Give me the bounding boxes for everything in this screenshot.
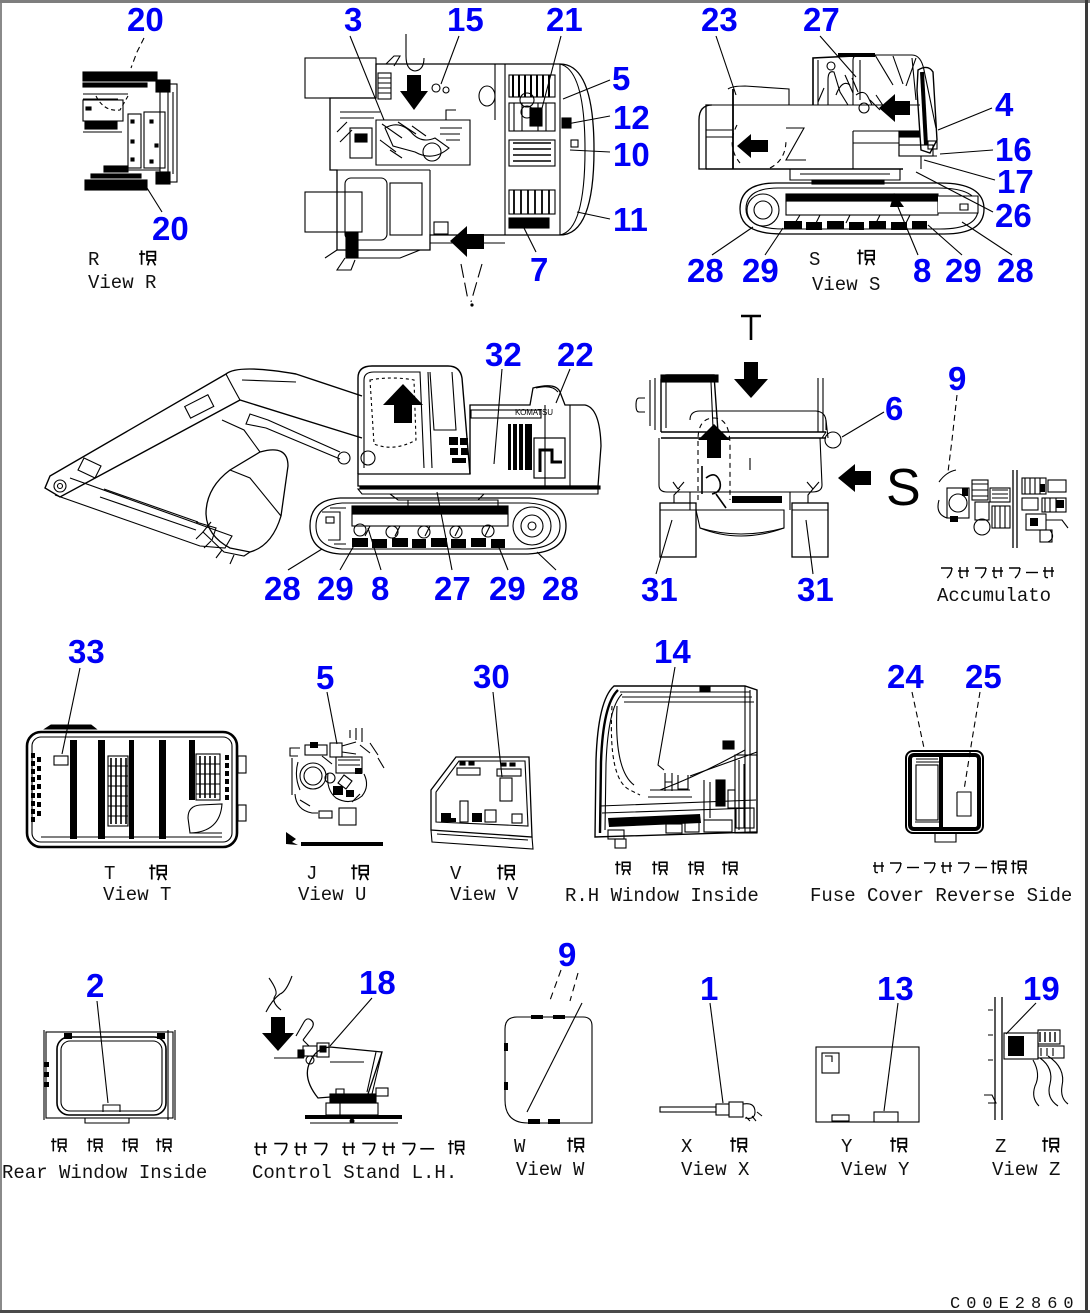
svg-text:C00E2860: C00E2860 xyxy=(950,1295,1080,1313)
svg-text:14: 14 xyxy=(654,633,691,670)
svg-text:18: 18 xyxy=(359,964,396,1001)
svg-text:25: 25 xyxy=(965,658,1002,695)
svg-text:23: 23 xyxy=(701,1,738,38)
svg-text:11: 11 xyxy=(613,201,648,238)
svg-text:Fuse Cover Reverse Side: Fuse Cover Reverse Side xyxy=(810,885,1072,907)
svg-text:T: T xyxy=(104,863,115,885)
svg-text:29: 29 xyxy=(489,570,526,607)
svg-text:8: 8 xyxy=(913,252,931,289)
svg-text:30: 30 xyxy=(473,658,510,695)
svg-text:28: 28 xyxy=(542,570,579,607)
svg-text:Rear Window Inside: Rear Window Inside xyxy=(2,1162,207,1184)
svg-text:V: V xyxy=(450,863,462,885)
svg-text:3: 3 xyxy=(344,1,362,38)
svg-text:29: 29 xyxy=(742,252,779,289)
svg-text:Accumulato: Accumulato xyxy=(937,585,1051,607)
svg-text:20: 20 xyxy=(152,210,189,247)
svg-text:27: 27 xyxy=(434,570,471,607)
svg-text:View U: View U xyxy=(298,884,366,906)
svg-text:10: 10 xyxy=(613,136,650,173)
svg-text:View S: View S xyxy=(812,274,880,296)
svg-text:KOMATSU: KOMATSU xyxy=(515,408,553,417)
svg-text:View T: View T xyxy=(103,884,171,906)
svg-text:13: 13 xyxy=(877,970,914,1007)
svg-text:31: 31 xyxy=(641,571,678,608)
svg-text:5: 5 xyxy=(316,659,334,696)
svg-text:26: 26 xyxy=(995,197,1032,234)
svg-text:View W: View W xyxy=(516,1159,585,1181)
svg-text:Y: Y xyxy=(841,1136,853,1158)
svg-text:W: W xyxy=(514,1136,526,1158)
svg-text:24: 24 xyxy=(887,658,924,695)
svg-text:15: 15 xyxy=(447,1,484,38)
svg-text:17: 17 xyxy=(997,163,1034,200)
svg-text:S: S xyxy=(886,459,921,517)
svg-text:4: 4 xyxy=(995,86,1014,123)
svg-text:28: 28 xyxy=(264,570,301,607)
svg-text:View R: View R xyxy=(88,272,156,294)
svg-text:29: 29 xyxy=(945,252,982,289)
svg-text:X: X xyxy=(681,1136,693,1158)
svg-text:27: 27 xyxy=(803,1,840,38)
svg-text:12: 12 xyxy=(613,99,650,136)
svg-text:Control Stand L.H.: Control Stand L.H. xyxy=(252,1162,457,1184)
svg-text:7: 7 xyxy=(530,251,548,288)
svg-text:View Z: View Z xyxy=(992,1159,1060,1181)
svg-text:View X: View X xyxy=(681,1159,750,1181)
svg-text:29: 29 xyxy=(317,570,354,607)
svg-text:19: 19 xyxy=(1023,970,1060,1007)
svg-text:R.H Window Inside: R.H Window Inside xyxy=(565,885,759,907)
svg-text:View V: View V xyxy=(450,884,519,906)
svg-text:9: 9 xyxy=(558,936,576,973)
svg-text:28: 28 xyxy=(687,252,724,289)
svg-text:Z: Z xyxy=(995,1136,1006,1158)
svg-text:1: 1 xyxy=(700,970,718,1007)
svg-text:20: 20 xyxy=(127,1,164,38)
svg-text:22: 22 xyxy=(557,336,594,373)
svg-text:R: R xyxy=(88,249,99,271)
svg-text:8: 8 xyxy=(371,570,389,607)
svg-text:21: 21 xyxy=(546,1,583,38)
svg-text:S: S xyxy=(809,249,820,271)
svg-text:View Y: View Y xyxy=(841,1159,910,1181)
svg-text:5: 5 xyxy=(612,60,630,97)
svg-text:J: J xyxy=(306,863,317,885)
svg-text:28: 28 xyxy=(997,252,1034,289)
svg-text:33: 33 xyxy=(68,633,105,670)
svg-text:9: 9 xyxy=(948,360,966,397)
svg-text:2: 2 xyxy=(86,967,104,1004)
svg-text:31: 31 xyxy=(797,571,834,608)
svg-text:6: 6 xyxy=(885,390,903,427)
svg-text:32: 32 xyxy=(485,336,522,373)
